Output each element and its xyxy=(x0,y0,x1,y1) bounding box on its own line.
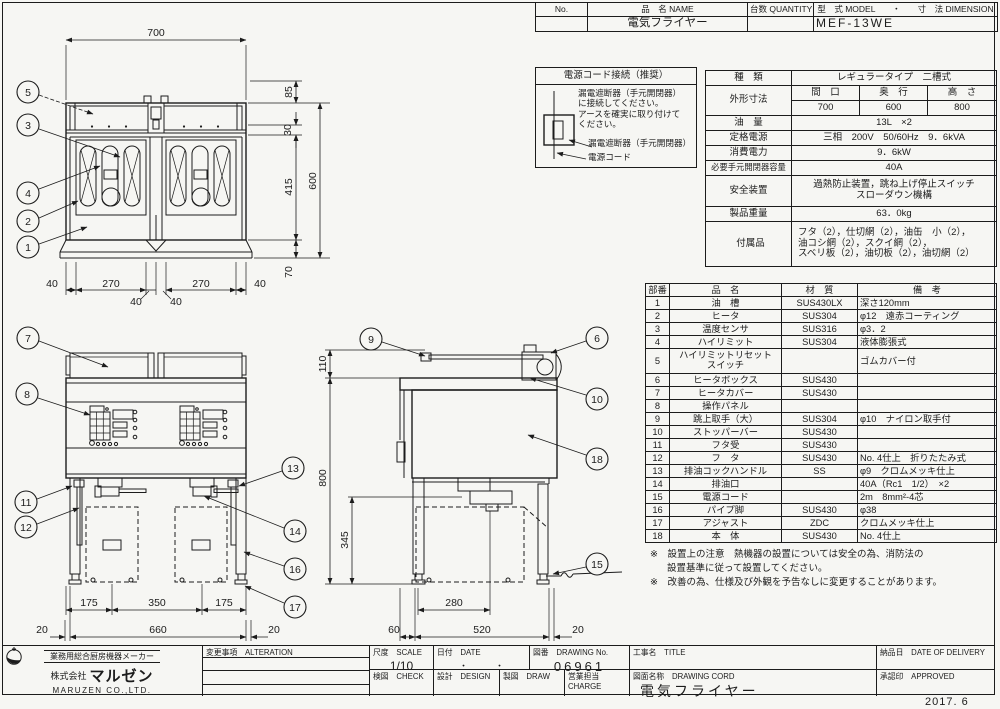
spec-depth-label: 奥 行 xyxy=(860,86,928,101)
part-name: 排油コックハンドル xyxy=(670,465,782,478)
alteration-label: 変更事項 ALTERATION xyxy=(203,646,369,658)
parts-row: 15電源コード2m 8mm²-4芯 xyxy=(646,491,997,504)
title-col-qty: 台数 QUANTITY xyxy=(748,3,814,17)
project-title-label: 工事名 TITLE xyxy=(630,646,876,659)
part-material: SUS430LX xyxy=(782,297,858,310)
title-table: No. 品 名 NAME 台数 QUANTITY 型 式 MODEL ・ 寸 法… xyxy=(535,2,998,32)
spec-width-value: 700 xyxy=(792,101,860,116)
note-line-3: ※ 改善の為、仕様及び外観を予告なしに変更することがあります。 xyxy=(650,576,995,590)
parts-row: 16パイプ脚SUS430φ38 xyxy=(646,504,997,517)
charge-label: 営業担当 CHARGE xyxy=(565,670,629,692)
part-material: SUS430 xyxy=(782,387,858,400)
part-no: 8 xyxy=(646,400,670,413)
quantity-value xyxy=(748,17,814,32)
part-note: 2m 8mm²-4芯 xyxy=(858,491,997,504)
part-note xyxy=(858,426,997,439)
scale-label: 尺度 SCALE xyxy=(370,646,433,659)
spec-safety-value: 過熱防止装置，跳ね上げ停止スイッチ スローダウン機構 xyxy=(792,176,997,207)
svg-text:13: 13 xyxy=(287,463,299,475)
alteration-block: 変更事項 ALTERATION xyxy=(203,646,370,696)
parts-row: 11フタ受SUS430 xyxy=(646,439,997,452)
spec-width-label: 間 口 xyxy=(792,86,860,101)
spec-breaker-label: 必要手元開閉器容量 xyxy=(706,161,792,176)
spec-weight-label: 製品重量 xyxy=(706,207,792,222)
part-name: 跳上取手（大） xyxy=(670,413,782,426)
dim-plan-270r: 270 xyxy=(192,278,210,290)
callout-1: 1 xyxy=(17,236,39,258)
svg-text:18: 18 xyxy=(591,454,603,466)
part-no: 5 xyxy=(646,349,670,374)
part-note: φ9 クロムメッキ仕上 xyxy=(858,465,997,478)
part-name: 温度センサ xyxy=(670,323,782,336)
dim-plan-depth: 600 xyxy=(307,172,319,190)
part-no: 15 xyxy=(646,491,670,504)
dim-front-175l: 175 xyxy=(80,597,98,609)
spec-safety-line2: スローダウン機構 xyxy=(794,191,994,202)
callout-5: 5 xyxy=(17,81,39,103)
part-no: 3 xyxy=(646,323,670,336)
part-material xyxy=(782,478,858,491)
parts-col-no: 部番 xyxy=(646,284,670,297)
spec-height-value: 800 xyxy=(928,101,997,116)
part-name: 操作パネル xyxy=(670,400,782,413)
part-name: 排油口 xyxy=(670,478,782,491)
spec-oil-label: 油 量 xyxy=(706,116,792,131)
parts-row: 17アジャストZDCクロムメッキ仕上 xyxy=(646,517,997,530)
parts-row: 9跳上取手（大）SUS304φ10 ナイロン取手付 xyxy=(646,413,997,426)
callout-11: 11 xyxy=(15,491,37,513)
spec-breaker-value: 40A xyxy=(792,161,997,176)
alteration-row xyxy=(203,658,369,671)
part-no: 12 xyxy=(646,452,670,465)
model-number: MEF-13WE xyxy=(814,17,998,32)
spec-power-value: 三相 200V 50/60Hz 9．6kVA xyxy=(792,131,997,146)
spec-power-label: 定格電源 xyxy=(706,131,792,146)
parts-row: 2ヒータSUS304φ12 遠赤コーティング xyxy=(646,310,997,323)
drawing-no-label: 図番 DRAWING No. xyxy=(530,646,629,659)
title-col-model-dim: 型 式 MODEL ・ 寸 法 DIMENSION xyxy=(814,3,998,17)
part-material: SS xyxy=(782,465,858,478)
dim-plan-270l: 270 xyxy=(102,278,120,290)
dim-plan-hinge: 30 xyxy=(282,124,294,136)
dim-plan-40r: 40 xyxy=(254,278,266,290)
dim-front-175r: 175 xyxy=(215,597,233,609)
part-material xyxy=(782,349,858,374)
power-cord-instruction: 漏電遮断器（手元開閉器） に接続してください。 アースを確実に取り付けて くださ… xyxy=(578,88,681,130)
svg-text:11: 11 xyxy=(21,497,32,509)
spec-kind-value: レギュラータイプ 二槽式 xyxy=(792,71,997,86)
part-name: ヒータボックス xyxy=(670,374,782,387)
drawing-name-value: 電気フライヤー xyxy=(630,681,876,701)
title-no-value xyxy=(536,17,588,32)
callout-2: 2 xyxy=(17,210,39,232)
part-note: φ10 ナイロン取手付 xyxy=(858,413,997,426)
parts-col-material: 材 質 xyxy=(782,284,858,297)
svg-text:8: 8 xyxy=(24,389,30,401)
callout-16: 16 xyxy=(284,558,306,580)
dim-plan-40l: 40 xyxy=(46,278,58,290)
part-note xyxy=(858,439,997,452)
parts-header-row: 部番 品 名 材 質 備 考 xyxy=(646,284,997,297)
callout-10: 10 xyxy=(586,388,608,410)
svg-text:4: 4 xyxy=(25,188,31,200)
maker-block: 業務用総合厨房機器メーカー 株式会社 マルゼン MARUZEN CO.,LTD. xyxy=(2,646,203,696)
svg-text:6: 6 xyxy=(594,333,600,345)
drawing-name-cell: 図面名称 DRAWING CORD 電気フライヤー xyxy=(630,670,877,696)
part-note: 深さ120mm xyxy=(858,297,997,310)
check-label: 検図 CHECK xyxy=(370,670,433,683)
part-name: フ タ xyxy=(670,452,782,465)
approved-cell: 承認印 APPROVED xyxy=(877,670,995,696)
callout-17: 17 xyxy=(284,596,306,618)
dim-side-280: 280 xyxy=(445,597,463,609)
drawing-sheet: 700 85 30 415 70 600 40 270 270 40 40 xyxy=(0,0,1000,709)
side-view: 110 800 345 280 60 520 20 9 6 10 18 xyxy=(317,327,622,641)
callout-7: 7 xyxy=(17,327,39,349)
part-name: ヒータ xyxy=(670,310,782,323)
part-name: 油 槽 xyxy=(670,297,782,310)
part-no: 13 xyxy=(646,465,670,478)
part-material: ZDC xyxy=(782,517,858,530)
scale-cell: 尺度 SCALE 1/10 xyxy=(370,646,434,670)
date-cell: 日付 DATE ・ ・ xyxy=(434,646,530,670)
spec-outer-label: 外形寸法 xyxy=(706,86,792,116)
spec-kind-label: 種 類 xyxy=(706,71,792,86)
parts-row: 1油 槽SUS430LX深さ120mm xyxy=(646,297,997,310)
part-no: 14 xyxy=(646,478,670,491)
spec-weight-value: 63．0kg xyxy=(792,207,997,222)
company-name-en: MARUZEN CO.,LTD. xyxy=(2,686,202,695)
part-material: SUS316 xyxy=(782,323,858,336)
spec-acc-line1: フタ（2），仕切網（2），油缶 小（2）， xyxy=(798,228,994,239)
title-col-name: 品 名 NAME xyxy=(588,3,748,17)
callout-18: 18 xyxy=(586,448,608,470)
part-material: SUS430 xyxy=(782,452,858,465)
svg-text:2: 2 xyxy=(25,216,31,228)
part-name: ストッパーバー xyxy=(670,426,782,439)
part-note xyxy=(858,387,997,400)
dim-front-350: 350 xyxy=(148,597,166,609)
part-name: フタ受 xyxy=(670,439,782,452)
parts-row: 12フ タSUS430No. 4仕上 折りたたみ式 xyxy=(646,452,997,465)
part-material: SUS304 xyxy=(782,310,858,323)
part-material xyxy=(782,400,858,413)
part-note: 40A（Rc1 1/2） ×2 xyxy=(858,478,997,491)
part-note: No. 4仕上 折りたたみ式 xyxy=(858,452,997,465)
part-note xyxy=(858,400,997,413)
maruzen-logo xyxy=(2,646,26,665)
parts-row: 14排油口40A（Rc1 1/2） ×2 xyxy=(646,478,997,491)
callout-15: 15 xyxy=(586,553,608,575)
svg-text:5: 5 xyxy=(25,87,31,99)
title-col-no: No. xyxy=(536,3,588,17)
cord-label: 電源コード xyxy=(588,151,631,163)
part-material: SUS430 xyxy=(782,504,858,517)
parts-table: 部番 品 名 材 質 備 考 1油 槽SUS430LX深さ120mm 2ヒータS… xyxy=(645,283,997,543)
charge-cell: 営業担当 CHARGE xyxy=(565,670,630,696)
part-no: 7 xyxy=(646,387,670,400)
dim-plan-40c1: 40 xyxy=(130,296,142,308)
part-no: 17 xyxy=(646,517,670,530)
callout-4: 4 xyxy=(17,182,39,204)
parts-row: 3温度センサSUS316φ3．2 xyxy=(646,323,997,336)
part-material: SUS430 xyxy=(782,439,858,452)
plan-view: 700 85 30 415 70 600 40 270 270 40 40 xyxy=(17,27,330,308)
company-prefix: 株式会社 xyxy=(50,669,86,682)
parts-row: 4ハイリミットSUS304液体膨張式 xyxy=(646,336,997,349)
callout-6: 6 xyxy=(586,327,608,349)
part-name: ハイリミット xyxy=(670,336,782,349)
approved-label: 承認印 APPROVED xyxy=(877,670,995,683)
callout-14: 14 xyxy=(284,520,306,542)
spec-safety-label: 安全装置 xyxy=(706,176,792,207)
spec-height-label: 高 さ xyxy=(928,86,997,101)
spec-accessories-label: 付属品 xyxy=(706,222,792,267)
product-name: 電気フライヤー xyxy=(588,17,748,32)
part-no: 16 xyxy=(646,504,670,517)
svg-text:3: 3 xyxy=(25,120,31,132)
dim-side-520: 520 xyxy=(473,624,491,636)
note-line-2: 設置基準に従って設置してください。 xyxy=(650,562,995,576)
part-material xyxy=(782,491,858,504)
delivery-cell: 納品日 DATE OF DELIVERY xyxy=(877,646,995,670)
part-note: φ12 遠赤コーティング xyxy=(858,310,997,323)
spec-consumption-label: 消費電力 xyxy=(706,146,792,161)
part-name: 電源コード xyxy=(670,491,782,504)
part-material: SUS304 xyxy=(782,336,858,349)
svg-text:14: 14 xyxy=(289,526,301,538)
svg-text:7: 7 xyxy=(25,333,31,345)
date-label: 日付 DATE xyxy=(434,646,529,659)
part-name: アジャスト xyxy=(670,517,782,530)
spec-consumption-value: 9．6kW xyxy=(792,146,997,161)
breaker-label: 漏電遮断器（手元開閉器） xyxy=(588,137,691,149)
part-note: φ38 xyxy=(858,504,997,517)
dim-plan-width: 700 xyxy=(147,27,165,39)
dim-side-60: 60 xyxy=(388,624,400,636)
draw-cell: 製図 DRAW xyxy=(500,670,565,696)
draw-label: 製図 DRAW xyxy=(500,670,564,683)
svg-text:9: 9 xyxy=(368,334,374,346)
svg-text:1: 1 xyxy=(25,242,31,254)
callout-12: 12 xyxy=(15,516,37,538)
parts-col-name: 品 名 xyxy=(670,284,782,297)
date-stamp: 2017. 6 xyxy=(925,696,969,708)
parts-row: 6ヒータボックスSUS430 xyxy=(646,374,997,387)
part-note: クロムメッキ仕上 xyxy=(858,517,997,530)
delivery-label: 納品日 DATE OF DELIVERY xyxy=(877,646,995,659)
power-cord-note-box: 電源コード接続（推奨） 漏電遮断器（手元開閉器） に接続してください。 アースを… xyxy=(535,67,697,168)
parts-row: 13排油コックハンドルSSφ9 クロムメッキ仕上 xyxy=(646,465,997,478)
part-note: 液体膨張式 xyxy=(858,336,997,349)
dim-side-345: 345 xyxy=(339,531,351,549)
parts-row: 18本 体SUS430No. 4仕上 xyxy=(646,530,997,543)
svg-text:16: 16 xyxy=(289,564,301,576)
alteration-row xyxy=(203,671,369,685)
design-cell: 設計 DESIGN xyxy=(434,670,500,696)
dim-front-660: 660 xyxy=(149,624,167,636)
part-no: 10 xyxy=(646,426,670,439)
part-no: 4 xyxy=(646,336,670,349)
part-note: ゴムカバー付 xyxy=(858,349,997,374)
maker-tagline: 業務用総合厨房機器メーカー xyxy=(44,650,160,663)
part-name: パイプ脚 xyxy=(670,504,782,517)
dim-plan-rear: 85 xyxy=(283,86,295,98)
callout-9: 9 xyxy=(360,328,382,350)
part-no: 18 xyxy=(646,530,670,543)
svg-text:15: 15 xyxy=(591,559,603,571)
spec-acc-line3: スベリ板（2），油切板（2），油切網（2） xyxy=(798,249,994,260)
svg-text:17: 17 xyxy=(289,602,301,614)
parts-row: 8操作パネル xyxy=(646,400,997,413)
dim-plan-40c2: 40 xyxy=(170,296,182,308)
installation-notes: ※ 設置上の注意 熱機器の設置については安全の為、消防法の 設置基準に従って設置… xyxy=(650,548,995,589)
project-title-cell: 工事名 TITLE xyxy=(630,646,877,670)
spec-depth-value: 600 xyxy=(860,101,928,116)
dim-side-800: 800 xyxy=(317,469,329,487)
part-no: 1 xyxy=(646,297,670,310)
part-note xyxy=(858,374,997,387)
part-name: 本 体 xyxy=(670,530,782,543)
dim-plan-tank: 415 xyxy=(283,178,295,196)
parts-row: 7ヒータカバーSUS430 xyxy=(646,387,997,400)
callout-8: 8 xyxy=(16,383,38,405)
part-material: SUS430 xyxy=(782,530,858,543)
part-name: ヒータカバー xyxy=(670,387,782,400)
dim-side-110: 110 xyxy=(317,355,329,372)
drawing-no-cell: 図番 DRAWING No. 06961 xyxy=(530,646,630,670)
design-label: 設計 DESIGN xyxy=(434,670,499,683)
spec-table: 種 類 レギュラータイプ 二槽式 外形寸法 間 口 奥 行 高 さ 700 60… xyxy=(705,70,997,267)
part-name: ハイリミットリセット スイッチ xyxy=(670,349,782,374)
part-material: SUS430 xyxy=(782,426,858,439)
callout-13: 13 xyxy=(282,457,304,479)
svg-text:10: 10 xyxy=(591,394,603,406)
check-cell: 検図 CHECK xyxy=(370,670,434,696)
dim-side-20: 20 xyxy=(572,624,584,636)
svg-text:12: 12 xyxy=(20,522,32,534)
part-note: No. 4仕上 xyxy=(858,530,997,543)
part-no: 9 xyxy=(646,413,670,426)
part-note: φ3．2 xyxy=(858,323,997,336)
note-line-1: ※ 設置上の注意 熱機器の設置については安全の為、消防法の xyxy=(650,548,995,562)
spec-oil-value: 13L ×2 xyxy=(792,116,997,131)
parts-row: 10ストッパーバーSUS430 xyxy=(646,426,997,439)
parts-col-note: 備 考 xyxy=(858,284,997,297)
part-no: 2 xyxy=(646,310,670,323)
dim-front-20l: 20 xyxy=(36,624,48,636)
spec-accessories-value: フタ（2），仕切網（2），油缶 小（2）， 油コシ網（2），スクイ網（2）， ス… xyxy=(792,222,997,267)
part-no: 6 xyxy=(646,374,670,387)
callout-3: 3 xyxy=(17,114,39,136)
front-view: 175 350 175 20 660 20 7 8 11 12 13 14 xyxy=(15,327,306,641)
part-no: 11 xyxy=(646,439,670,452)
dim-plan-front: 70 xyxy=(283,266,295,278)
part-material: SUS304 xyxy=(782,413,858,426)
footer-title-block: 業務用総合厨房機器メーカー 株式会社 マルゼン MARUZEN CO.,LTD.… xyxy=(2,645,995,695)
power-cord-box-title: 電源コード接続（推奨） xyxy=(536,68,696,85)
dim-front-20r: 20 xyxy=(268,624,280,636)
parts-row: 5ハイリミットリセット スイッチゴムカバー付 xyxy=(646,349,997,374)
company-name: マルゼン xyxy=(90,665,154,686)
part-material: SUS430 xyxy=(782,374,858,387)
